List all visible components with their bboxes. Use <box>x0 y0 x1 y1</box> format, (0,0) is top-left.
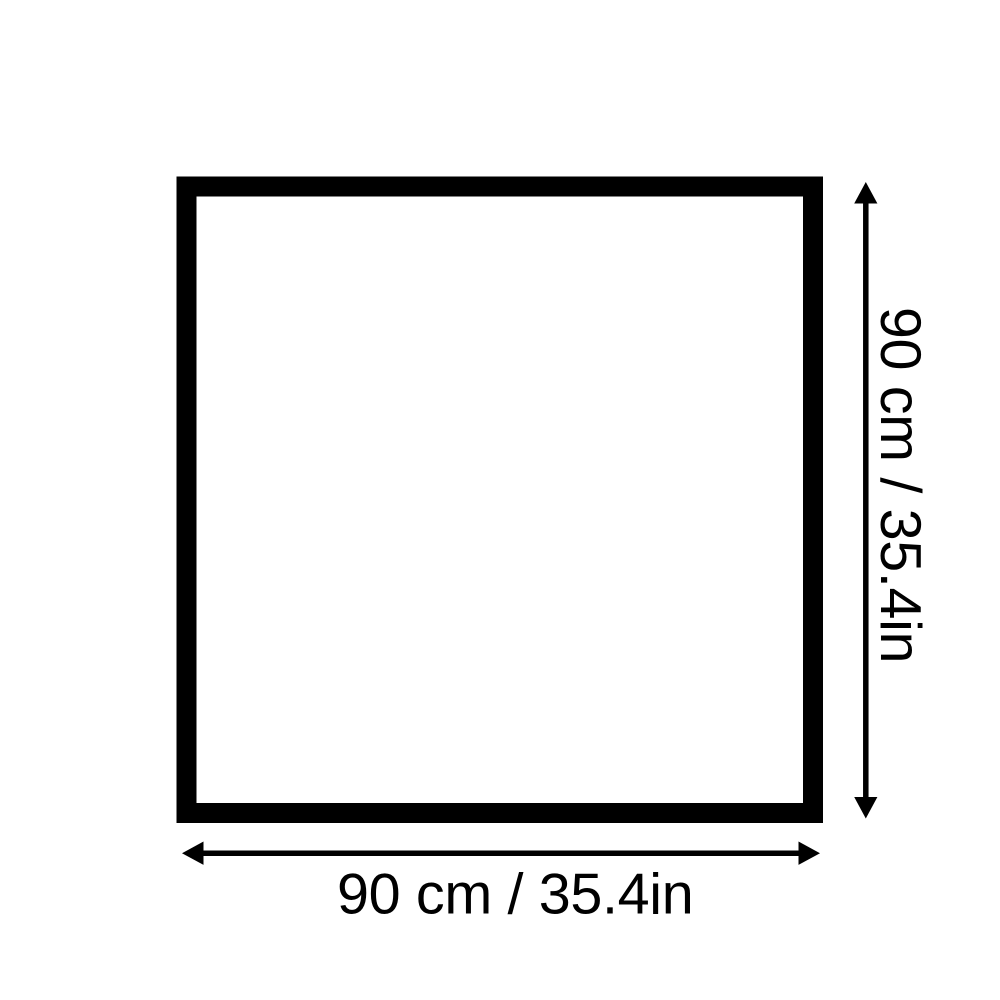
svg-text:90 cm / 35.4in: 90 cm / 35.4in <box>868 307 932 663</box>
svg-text:90 cm / 35.4in: 90 cm / 35.4in <box>337 863 693 927</box>
